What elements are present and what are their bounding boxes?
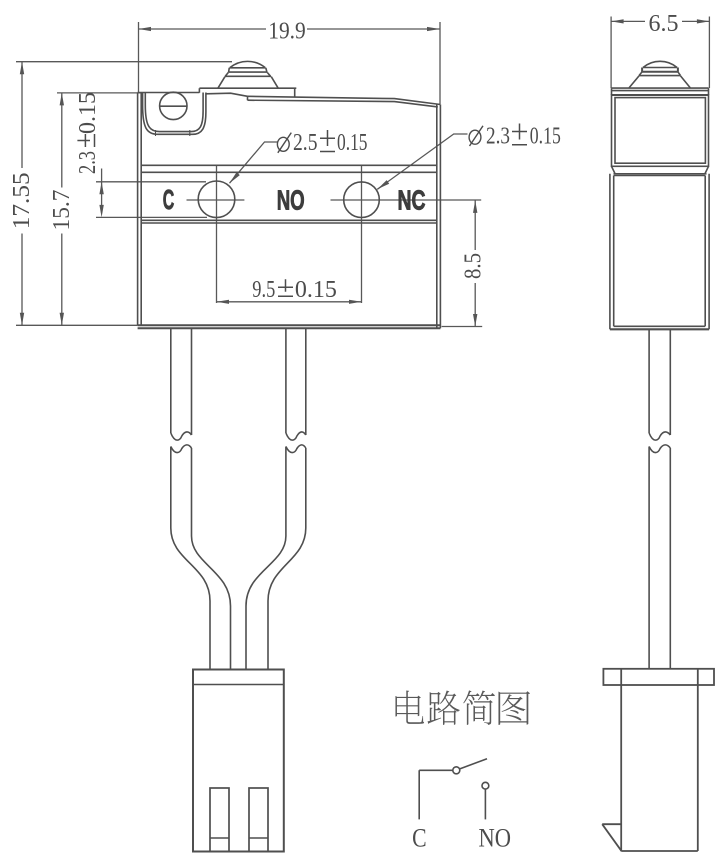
svg-text:9.5: 9.5 — [252, 277, 275, 303]
svg-text:0.15: 0.15 — [337, 130, 368, 156]
svg-text:2.5: 2.5 — [293, 130, 318, 156]
svg-text:0.15: 0.15 — [295, 277, 337, 303]
svg-text:NO: NO — [479, 823, 512, 853]
svg-text:6.5: 6.5 — [649, 11, 679, 37]
svg-text:15.7: 15.7 — [49, 190, 75, 231]
svg-text:NC: NC — [398, 185, 426, 216]
svg-text:8.5: 8.5 — [461, 253, 487, 279]
svg-text:0.15: 0.15 — [75, 92, 101, 134]
svg-text:NO: NO — [277, 185, 305, 216]
svg-text:17.55: 17.55 — [9, 172, 35, 229]
svg-text:2.3: 2.3 — [75, 151, 101, 174]
svg-text:0.15: 0.15 — [530, 124, 561, 150]
svg-text:2.3: 2.3 — [486, 124, 510, 150]
svg-text:19.9: 19.9 — [268, 19, 306, 45]
svg-text:C: C — [163, 184, 175, 215]
svg-text:C: C — [412, 823, 427, 853]
